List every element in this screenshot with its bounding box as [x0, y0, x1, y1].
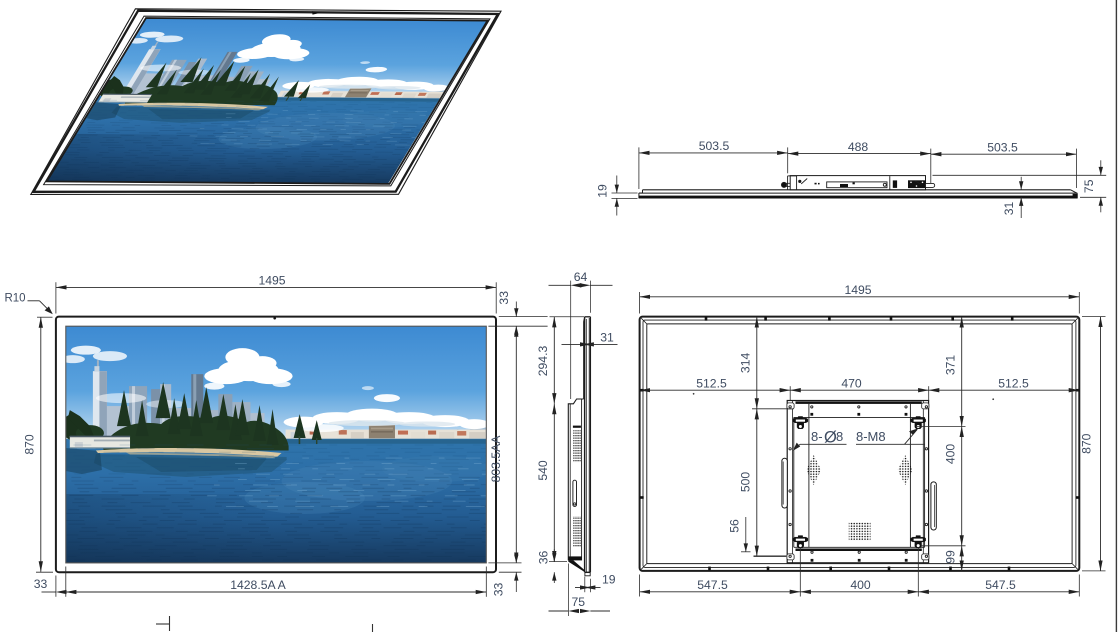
- svg-text:75: 75: [572, 595, 586, 609]
- svg-text:512.5: 512.5: [696, 376, 727, 390]
- svg-text:512.5: 512.5: [998, 376, 1029, 390]
- svg-text:33: 33: [491, 583, 505, 597]
- svg-text:31: 31: [600, 330, 614, 344]
- svg-text:870: 870: [23, 434, 37, 455]
- svg-text:1495: 1495: [258, 274, 285, 288]
- svg-text:400: 400: [850, 578, 871, 592]
- svg-text:33: 33: [34, 577, 48, 591]
- svg-text:314: 314: [739, 353, 753, 374]
- svg-text:1495: 1495: [844, 283, 871, 297]
- svg-text:870: 870: [1080, 433, 1094, 454]
- svg-text:1428.5A A: 1428.5A A: [230, 578, 286, 592]
- svg-text:33: 33: [497, 291, 511, 305]
- svg-text:8-: 8-: [811, 429, 823, 444]
- svg-text:400: 400: [943, 444, 957, 465]
- svg-text:19: 19: [602, 572, 616, 586]
- svg-text:500: 500: [739, 472, 753, 493]
- svg-text:31: 31: [1002, 202, 1016, 216]
- svg-text:294.3: 294.3: [536, 346, 550, 377]
- svg-text:75: 75: [1082, 179, 1096, 193]
- svg-text:488: 488: [848, 140, 869, 154]
- svg-text:8-M8: 8-M8: [856, 429, 886, 444]
- svg-text:371: 371: [943, 355, 957, 376]
- svg-text:503.5: 503.5: [699, 139, 730, 153]
- svg-text:R10: R10: [4, 293, 25, 305]
- svg-text:540: 540: [536, 460, 550, 481]
- svg-text:56: 56: [727, 519, 741, 533]
- svg-text:470: 470: [841, 376, 862, 390]
- svg-text:547.5: 547.5: [697, 578, 728, 592]
- svg-text:803.5AA: 803.5AA: [489, 435, 503, 483]
- svg-text:19: 19: [596, 184, 610, 198]
- svg-text:36: 36: [536, 551, 550, 565]
- svg-text:99: 99: [943, 550, 957, 564]
- svg-text:547.5: 547.5: [985, 578, 1016, 592]
- svg-text:8: 8: [836, 429, 843, 444]
- svg-text:64: 64: [574, 270, 588, 284]
- svg-text:503.5: 503.5: [987, 140, 1018, 154]
